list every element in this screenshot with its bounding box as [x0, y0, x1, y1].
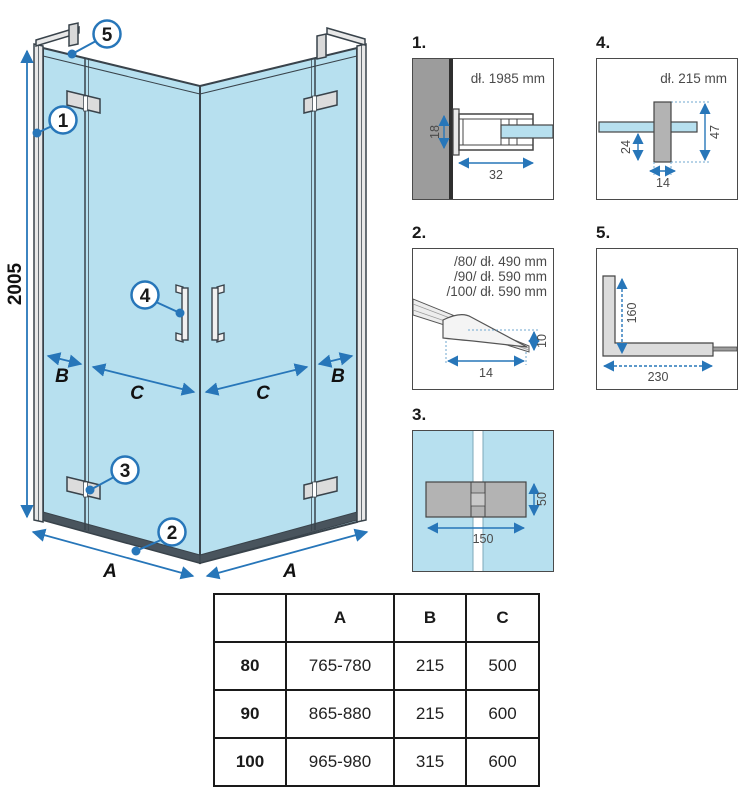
detail-2-drawing: /80/ dł. 490 mm /90/ dł. 590 mm /100/ dł…	[412, 248, 554, 390]
callout-3-number: 3	[120, 461, 131, 482]
callout-4-number: 4	[140, 286, 151, 307]
detail-2-dim-height: 10	[535, 334, 549, 348]
cell-c: 600	[466, 738, 539, 786]
glass-hinge-section	[426, 482, 526, 517]
detail-3-dim-width: 150	[473, 532, 494, 546]
dimension-height: 2005	[5, 51, 27, 517]
a-right-label: A	[282, 561, 297, 582]
detail-4-drawing: dł. 215 mm 47 24 14	[596, 58, 738, 200]
table-header-c: C	[466, 594, 539, 642]
detail-1-drawing: dł. 1985 mm 18 32	[412, 58, 554, 200]
handle-bar-section	[654, 102, 671, 162]
top-arm-left	[36, 23, 79, 46]
main-isometric-drawing: 2005 B C C B A A 5	[0, 0, 410, 600]
table-header-a: A	[286, 594, 394, 642]
cell-c: 600	[466, 690, 539, 738]
detail-5-dims: 160 230	[604, 279, 712, 384]
detail-4-dim-height: 47	[708, 125, 722, 139]
detail-2-line3: /100/ dł. 590 mm	[446, 284, 547, 299]
c-right-label: C	[256, 383, 270, 404]
glass-section	[501, 125, 553, 138]
detail-3-dim-height: 50	[535, 492, 549, 506]
detail-4-label: 4.	[596, 33, 610, 53]
b-left-label: B	[55, 366, 69, 387]
height-dim-label: 2005	[5, 262, 26, 305]
spec-sheet-page: 2005 B C C B A A 5	[0, 0, 751, 800]
callout-5-number: 5	[102, 25, 113, 46]
detail-3-label: 3.	[412, 405, 426, 425]
detail-5-dim-width: 230	[648, 370, 669, 384]
detail-2-dim-width: 14	[479, 366, 493, 380]
cell-b: 215	[394, 642, 466, 690]
detail-1-label: 1.	[412, 33, 426, 53]
detail-5-label: 5.	[596, 223, 610, 243]
detail-5-drawing: 160 230	[596, 248, 738, 390]
bottom-seal-section	[413, 299, 529, 352]
c-left-label: C	[130, 383, 144, 404]
glass-strip	[599, 122, 697, 132]
size-table: A B C 80 765-780 215 500 90 865-880 215 …	[213, 593, 540, 787]
detail-1-dim-height: 18	[428, 125, 442, 139]
detail-2-line2: /90/ dł. 590 mm	[454, 269, 547, 284]
table-row: 90 865-880 215 600	[214, 690, 539, 738]
detail-4-dim-offset: 24	[619, 140, 633, 154]
detail-1-dim-width: 32	[489, 168, 503, 182]
callout-1-number: 1	[58, 111, 69, 132]
row-size-label: 90	[214, 690, 286, 738]
table-header-row: A B C	[214, 594, 539, 642]
stabilizer-bracket-section	[603, 276, 737, 356]
cell-a: 965-980	[286, 738, 394, 786]
callout-2-number: 2	[167, 523, 178, 544]
detail-5-dim-height: 160	[625, 303, 639, 324]
wall-profile-section	[453, 109, 553, 155]
a-left-label: A	[102, 561, 117, 582]
cell-b: 215	[394, 690, 466, 738]
cell-a: 765-780	[286, 642, 394, 690]
row-size-label: 80	[214, 642, 286, 690]
detail-4-title: dł. 215 mm	[660, 71, 727, 86]
detail-4-dim-width: 14	[656, 176, 670, 190]
detail-3-drawing: 50 150	[412, 430, 554, 572]
table-row: 100 965-980 315 600	[214, 738, 539, 786]
detail-1-title: dł. 1985 mm	[471, 71, 545, 86]
cell-a: 865-880	[286, 690, 394, 738]
table-row: 80 765-780 215 500	[214, 642, 539, 690]
cell-c: 500	[466, 642, 539, 690]
row-size-label: 100	[214, 738, 286, 786]
cell-b: 315	[394, 738, 466, 786]
detail-2-line1: /80/ dł. 490 mm	[454, 254, 547, 269]
wall-profile-right	[357, 44, 366, 522]
b-right-label: B	[331, 366, 345, 387]
table-header-b: B	[394, 594, 466, 642]
table-corner-cell	[214, 594, 286, 642]
detail-2-label: 2.	[412, 223, 426, 243]
wall-profile-left	[34, 44, 43, 522]
